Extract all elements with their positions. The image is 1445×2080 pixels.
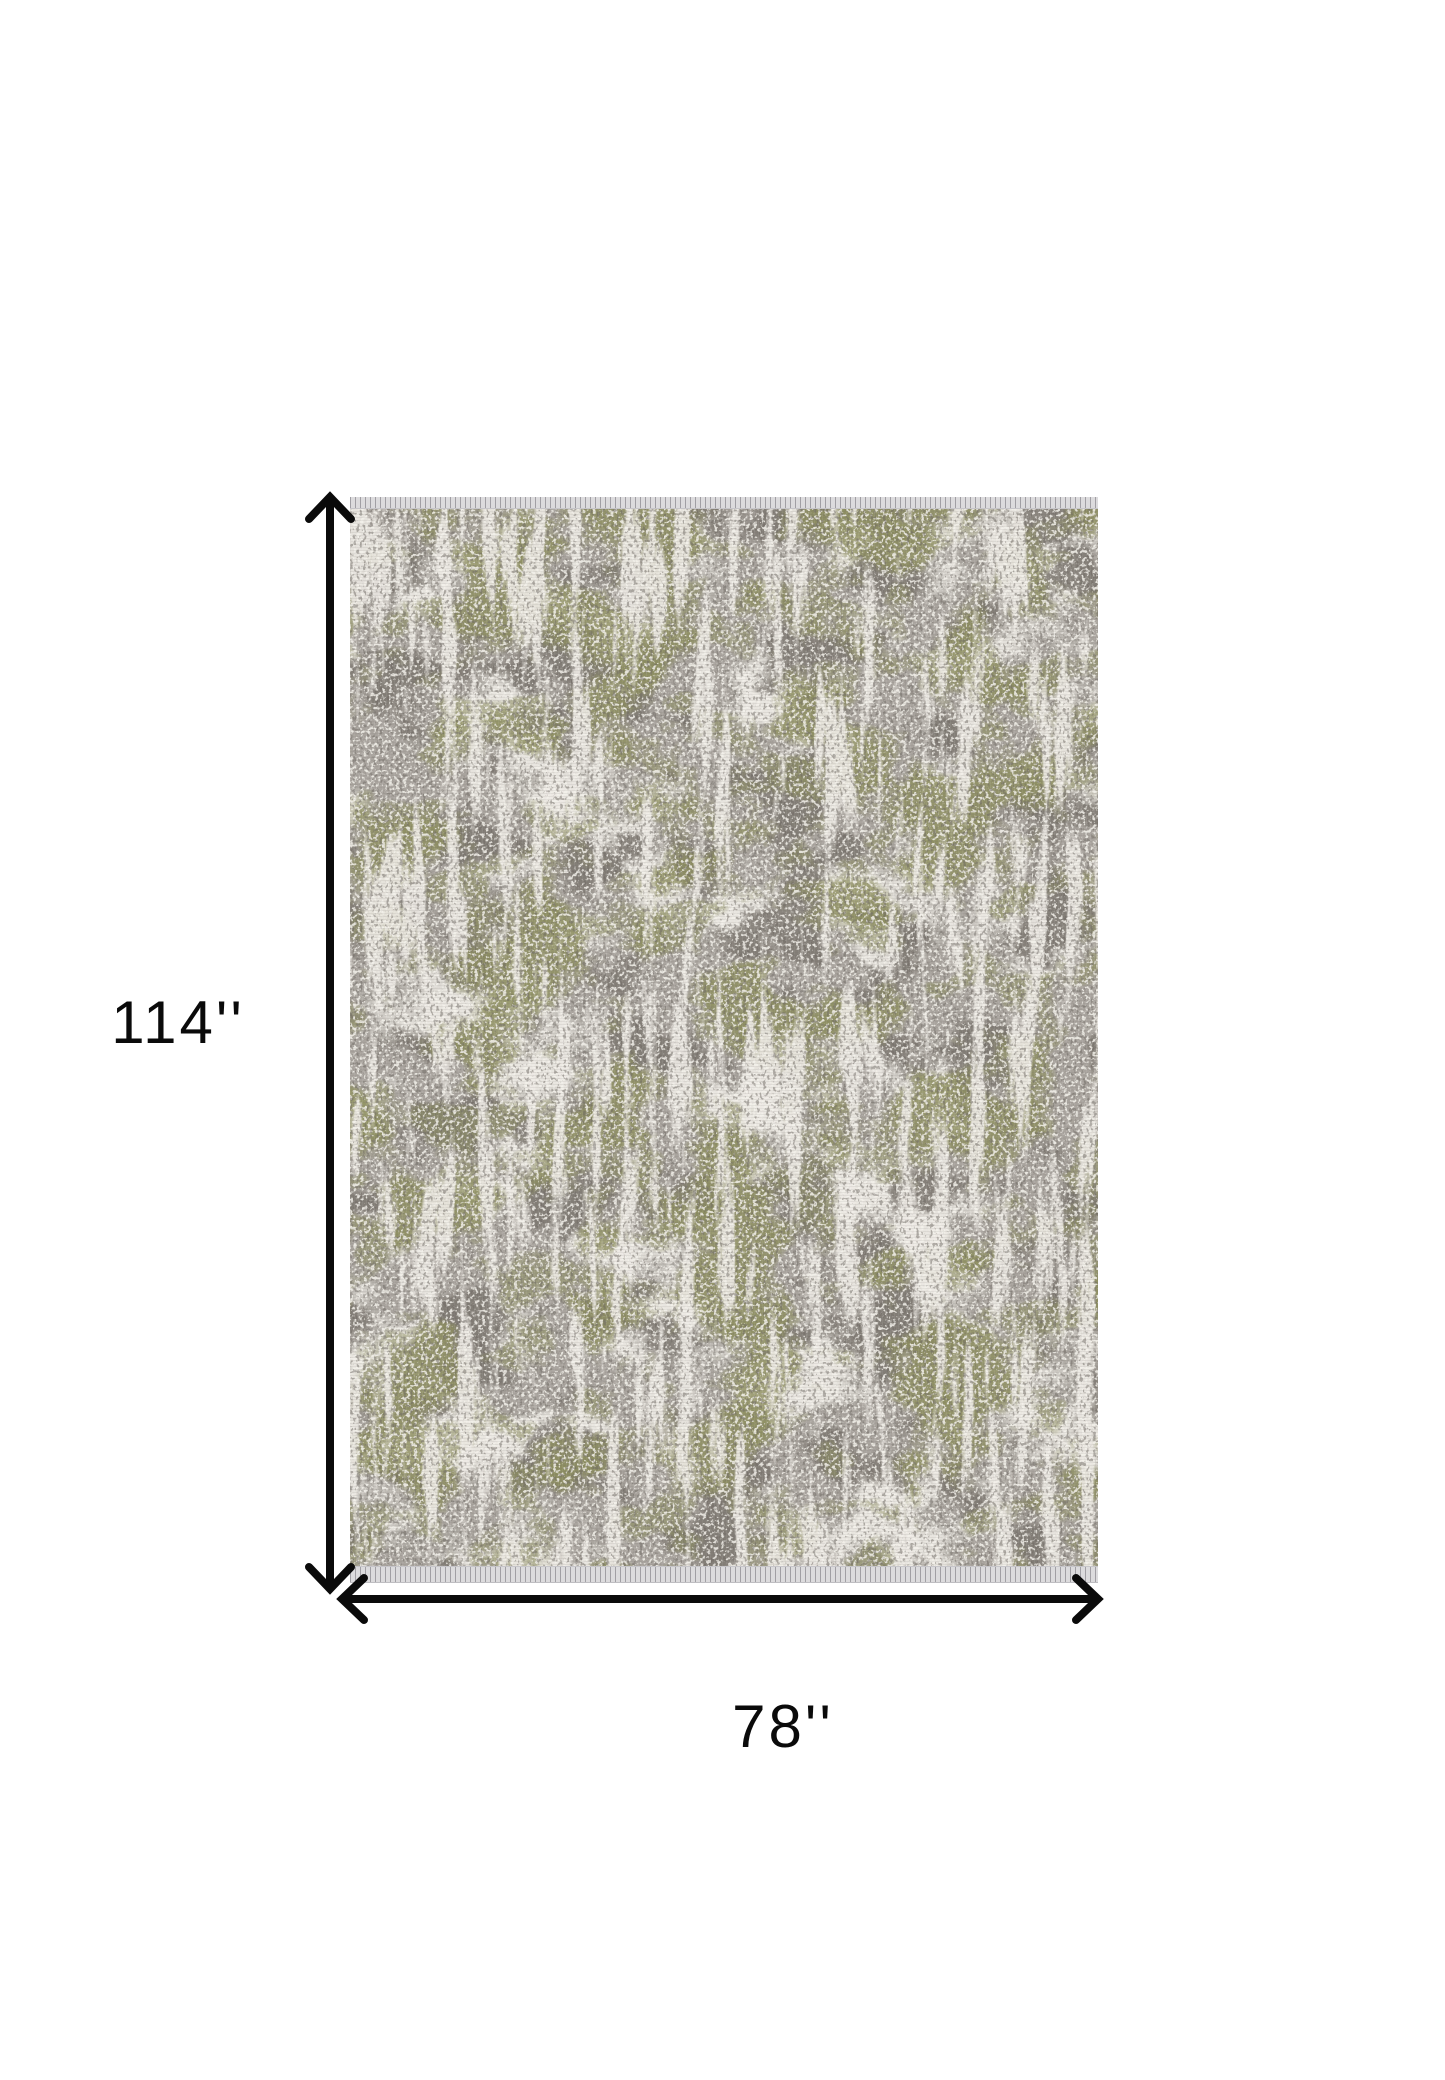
arrow-head-left-icon xyxy=(342,1578,364,1620)
width-dimension-label: 78'' xyxy=(732,1697,834,1757)
rug-image xyxy=(350,497,1098,1583)
rug-bottom-fringe xyxy=(350,1566,1098,1583)
dimension-diagram-canvas: 114'' 78'' xyxy=(0,0,1445,2080)
rug-dark-speckle-layer xyxy=(350,497,1098,1583)
arrow-head-up-icon xyxy=(309,497,351,519)
width-dimension-arrow xyxy=(342,1578,1098,1620)
height-dimension-arrow xyxy=(309,497,351,1589)
arrow-head-right-icon xyxy=(1076,1578,1098,1620)
height-dimension-label: 114'' xyxy=(111,993,245,1053)
rug-texture-image xyxy=(350,497,1098,1583)
arrow-head-down-icon xyxy=(309,1567,351,1589)
rug-top-fringe xyxy=(350,497,1098,509)
